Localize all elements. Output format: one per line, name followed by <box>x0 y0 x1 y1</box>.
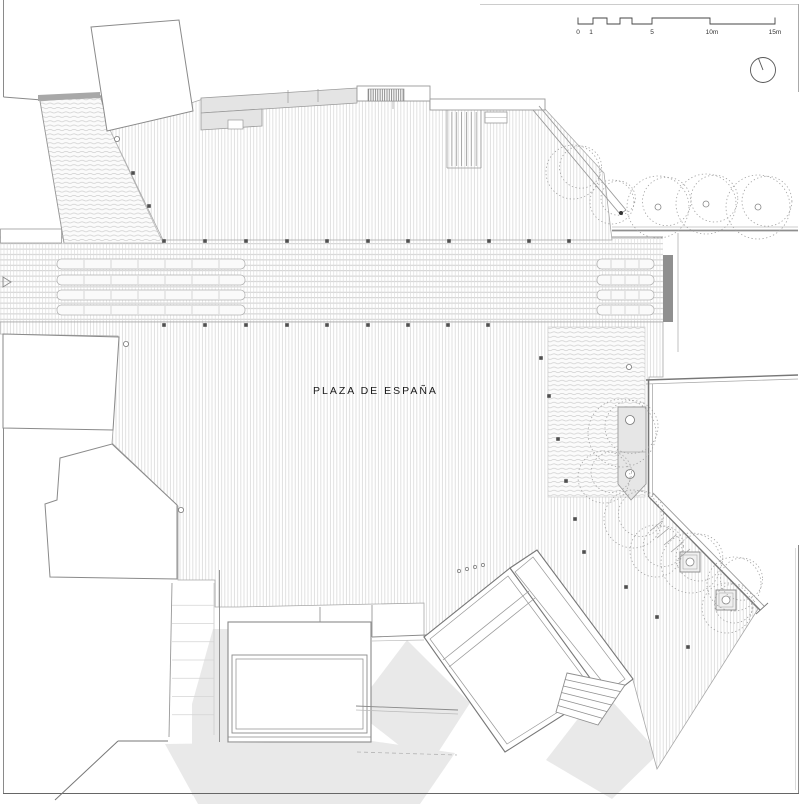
small-circle-marker <box>114 136 119 141</box>
top-terrace <box>430 99 545 110</box>
scale-tick-label: 1 <box>589 29 593 36</box>
street-post-marker <box>446 323 450 327</box>
kerb-structure <box>1 229 62 243</box>
building-outer-wall <box>228 622 371 742</box>
scale-tick-label: 15m <box>769 29 782 36</box>
scale-tick-label: 10m <box>706 29 719 36</box>
small-circle-marker <box>626 364 631 369</box>
planter-tree-trunk <box>722 596 730 604</box>
street-post-marker <box>487 239 491 243</box>
slope-marker <box>147 204 151 208</box>
tree-trunk <box>655 204 661 210</box>
platform-capsule <box>57 305 245 315</box>
platform-capsule <box>597 305 654 315</box>
scale-tick-label: 0 <box>576 29 580 36</box>
path-light-marker <box>582 550 586 554</box>
path-light-marker <box>564 479 568 483</box>
site-plan-drawing: PLAZA DE ESPAÑA 01510m15m <box>0 0 802 804</box>
street-post-marker <box>366 239 370 243</box>
bench-notch <box>228 120 243 129</box>
tilted-square-building <box>91 20 193 131</box>
path-light-marker <box>655 615 659 619</box>
path-light-marker <box>539 356 543 360</box>
left-building-upper <box>3 334 119 430</box>
path-light-marker <box>686 645 690 649</box>
street-post-marker <box>325 239 329 243</box>
platform-capsule <box>57 275 245 285</box>
small-circle-marker <box>123 341 128 346</box>
scale-tick-label: 5 <box>650 29 654 36</box>
platform-capsule <box>597 259 654 269</box>
street-post-marker <box>406 239 410 243</box>
street-post-marker <box>162 323 166 327</box>
top-pavilion-hatch <box>368 89 404 101</box>
tree-trunk <box>703 201 709 207</box>
site-plan-sheet: PLAZA DE ESPAÑA 01510m15m <box>0 0 802 804</box>
bollard-dot <box>619 211 623 215</box>
grey-shelter-bar <box>663 255 673 322</box>
street-post-marker <box>244 323 248 327</box>
path-light-marker <box>547 394 551 398</box>
street-post-marker <box>203 323 207 327</box>
small-circle-marker <box>178 507 183 512</box>
planter-tree-circle <box>626 416 635 425</box>
street-post-marker <box>447 239 451 243</box>
street-post-marker <box>567 239 571 243</box>
street-post-marker <box>486 323 490 327</box>
street-post-marker <box>366 323 370 327</box>
platform-capsule <box>597 275 654 285</box>
street-post-marker <box>162 239 166 243</box>
street-post-marker <box>527 239 531 243</box>
planter-tree-trunk <box>686 558 694 566</box>
platform-capsule <box>57 259 245 269</box>
street-post-marker <box>244 239 248 243</box>
platform-capsule <box>597 290 654 300</box>
path-light-marker <box>556 437 560 441</box>
plaza-name-label: PLAZA DE ESPAÑA <box>313 384 438 397</box>
street-post-marker <box>203 239 207 243</box>
path-light-marker <box>624 585 628 589</box>
street-post-marker <box>285 323 289 327</box>
slope-marker <box>131 171 135 175</box>
tree-trunk <box>755 204 761 210</box>
street-post-marker <box>285 239 289 243</box>
street-post-marker <box>406 323 410 327</box>
platform-capsule <box>57 290 245 300</box>
path-light-marker <box>573 517 577 521</box>
street-post-marker <box>325 323 329 327</box>
